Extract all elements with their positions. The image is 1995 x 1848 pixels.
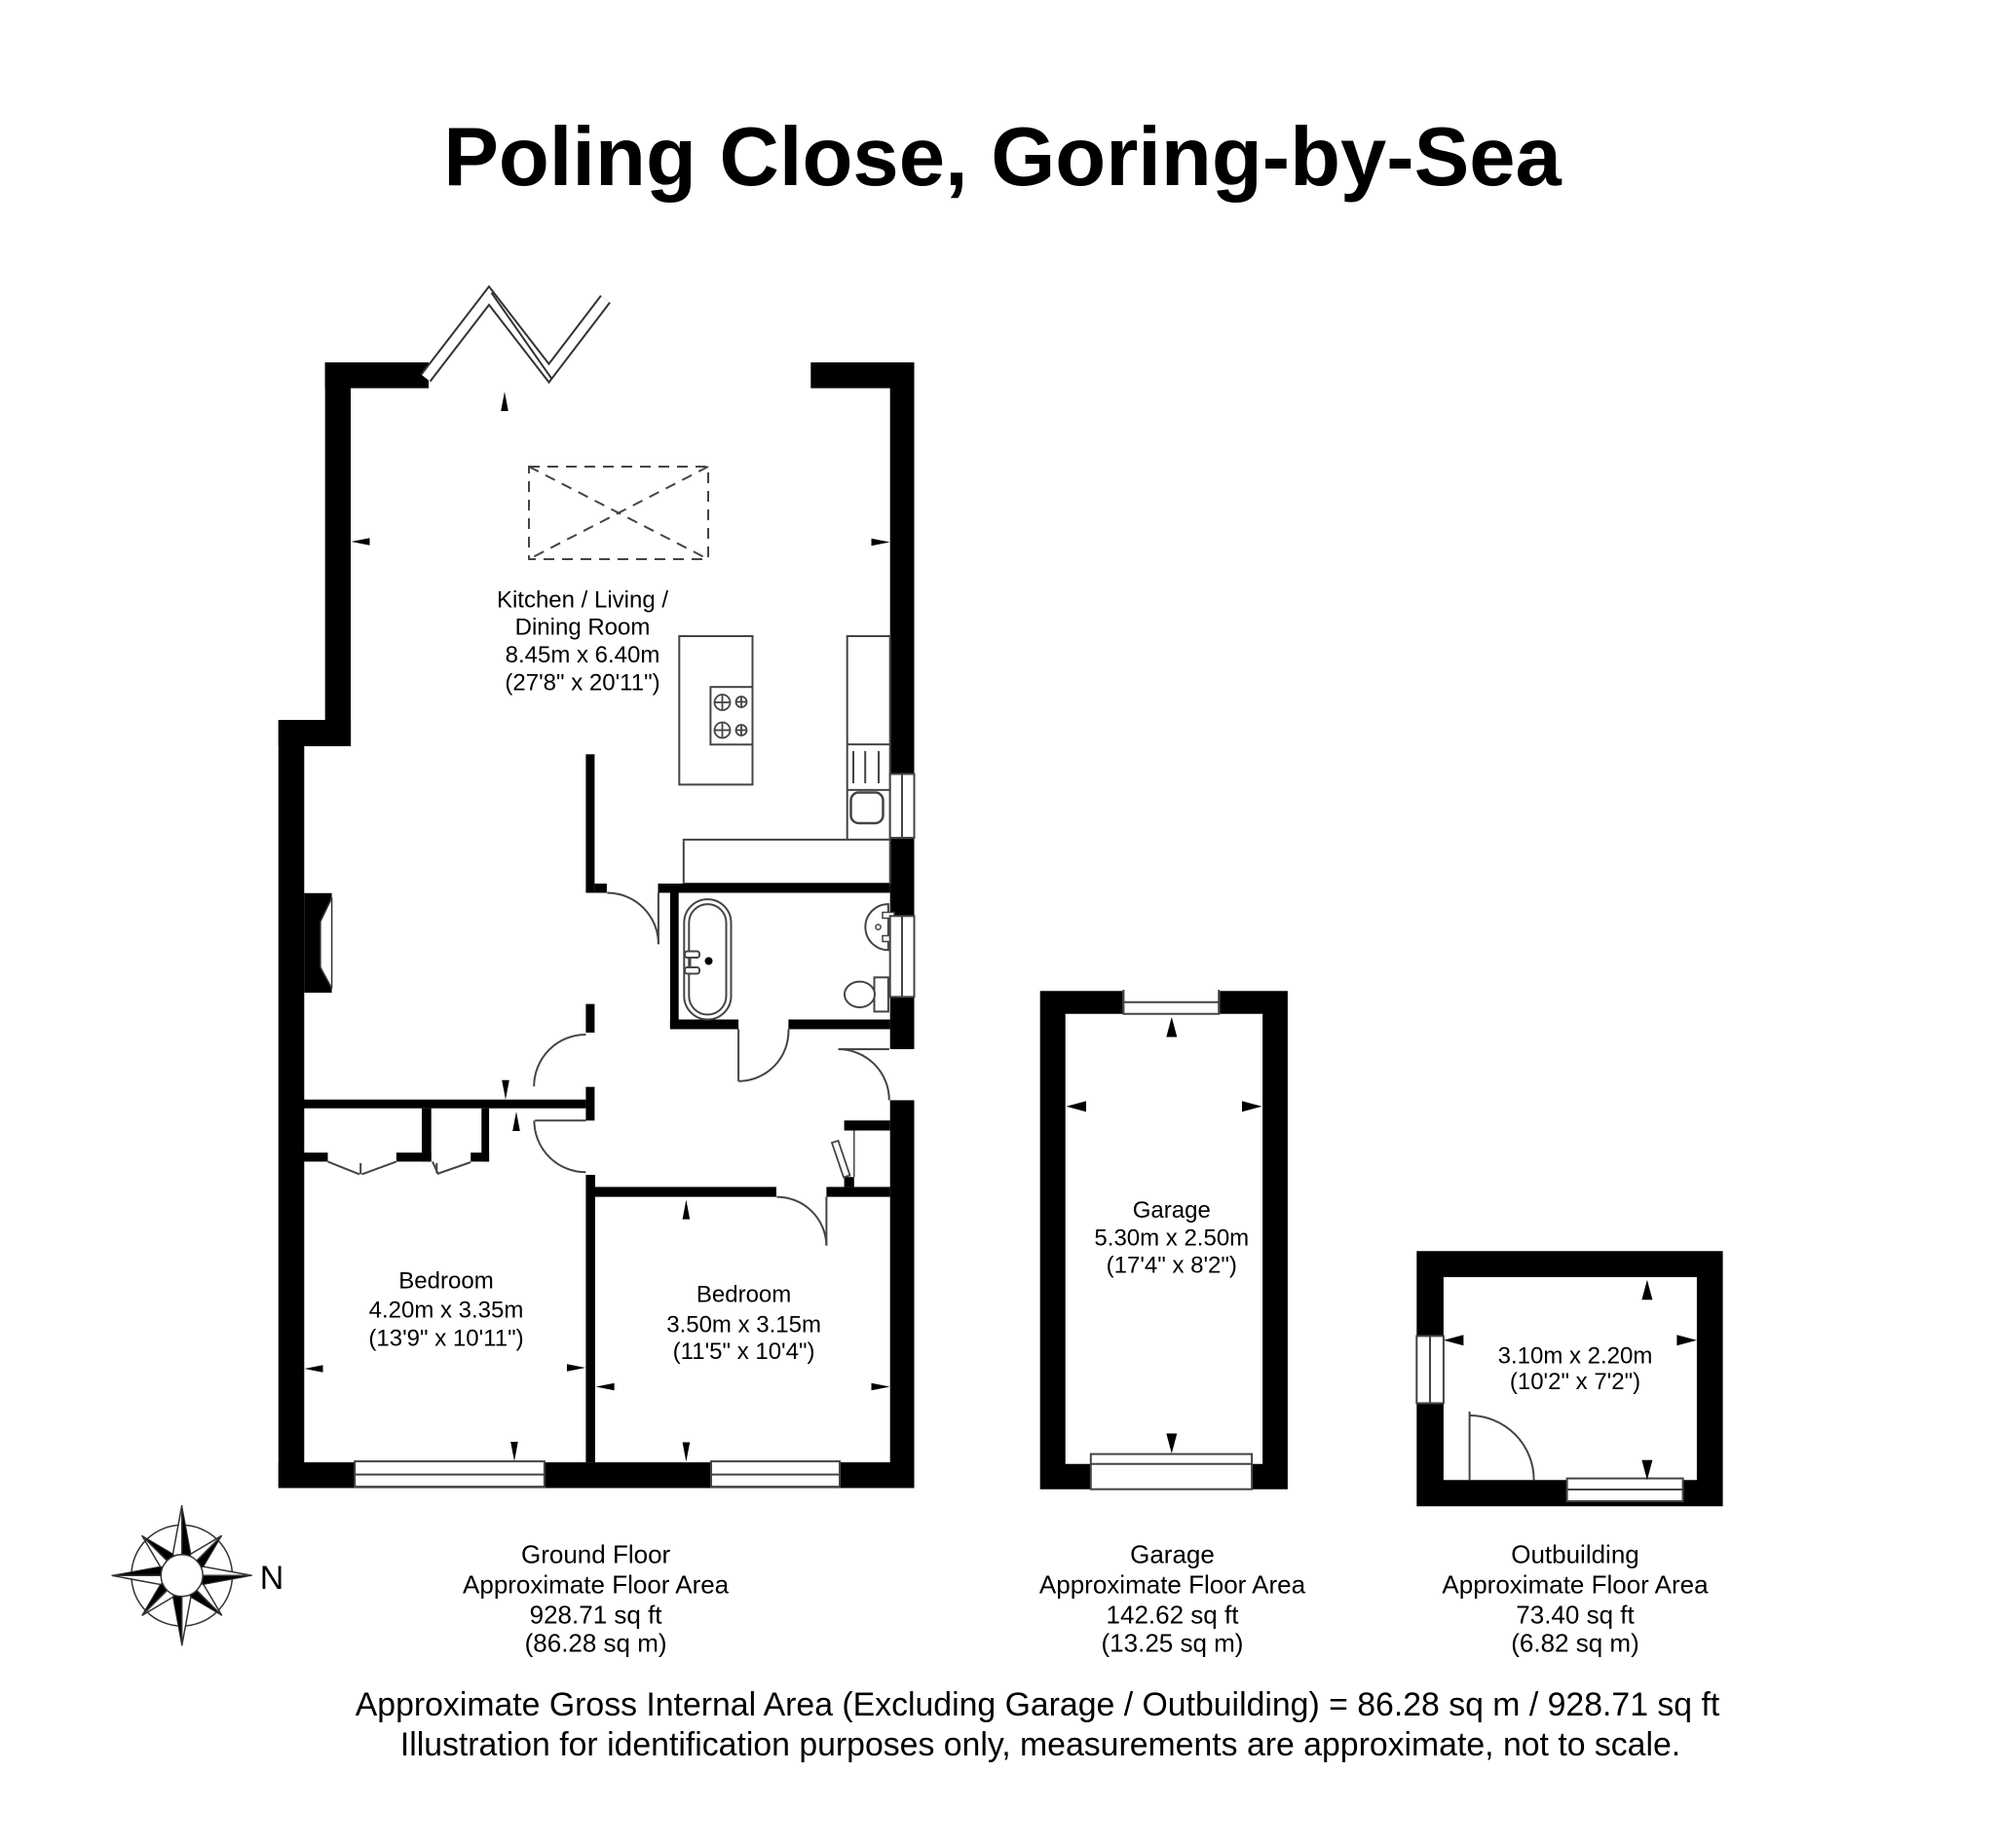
svg-text:Approximate Floor Area: Approximate Floor Area	[1039, 1570, 1306, 1600]
svg-text:(10'2" x 7'2"): (10'2" x 7'2")	[1510, 1369, 1640, 1395]
svg-text:(17'4" x 8'2"): (17'4" x 8'2")	[1107, 1253, 1237, 1279]
svg-text:Dining Room: Dining Room	[515, 615, 651, 641]
svg-text:Bedroom: Bedroom	[398, 1268, 493, 1295]
svg-text:3.50m x 3.15m: 3.50m x 3.15m	[666, 1311, 821, 1338]
svg-text:Ground Floor: Ground Floor	[521, 1540, 671, 1569]
svg-text:Garage: Garage	[1130, 1540, 1215, 1569]
svg-text:Garage: Garage	[1133, 1197, 1211, 1224]
svg-text:(11'5" x 10'4"): (11'5" x 10'4")	[673, 1339, 815, 1365]
svg-text:4.20m x 3.35m: 4.20m x 3.35m	[369, 1298, 524, 1324]
svg-text:Kitchen / Living /: Kitchen / Living /	[497, 587, 668, 614]
svg-text:Approximate Gross Internal Are: Approximate Gross Internal Area (Excludi…	[356, 1686, 1720, 1723]
svg-text:(86.28 sq m): (86.28 sq m)	[525, 1629, 667, 1658]
svg-text:142.62 sq ft: 142.62 sq ft	[1107, 1601, 1240, 1630]
svg-text:(13'9" x 10'11"): (13'9" x 10'11")	[368, 1326, 523, 1352]
svg-text:73.40 sq ft: 73.40 sq ft	[1516, 1601, 1635, 1630]
svg-text:Bedroom: Bedroom	[696, 1282, 791, 1308]
svg-text:3.10m x 2.20m: 3.10m x 2.20m	[1498, 1343, 1653, 1370]
svg-text:(6.82 sq m): (6.82 sq m)	[1511, 1629, 1639, 1658]
svg-text:Illustration for identificatio: Illustration for identification purposes…	[400, 1726, 1680, 1763]
svg-text:Outbuilding: Outbuilding	[1511, 1540, 1639, 1569]
svg-text:Approximate Floor Area: Approximate Floor Area	[1442, 1570, 1709, 1600]
svg-text:Approximate Floor Area: Approximate Floor Area	[463, 1570, 730, 1600]
svg-text:5.30m x 2.50m: 5.30m x 2.50m	[1094, 1225, 1249, 1251]
svg-text:Poling Close, Goring-by-Sea: Poling Close, Goring-by-Sea	[443, 111, 1562, 204]
svg-text:(13.25 sq m): (13.25 sq m)	[1102, 1629, 1244, 1658]
svg-text:8.45m x 6.40m: 8.45m x 6.40m	[506, 642, 660, 668]
svg-text:928.71 sq ft: 928.71 sq ft	[530, 1601, 663, 1630]
svg-text:(27'8" x 20'11"): (27'8" x 20'11")	[505, 669, 659, 696]
svg-text:N: N	[260, 1560, 284, 1597]
